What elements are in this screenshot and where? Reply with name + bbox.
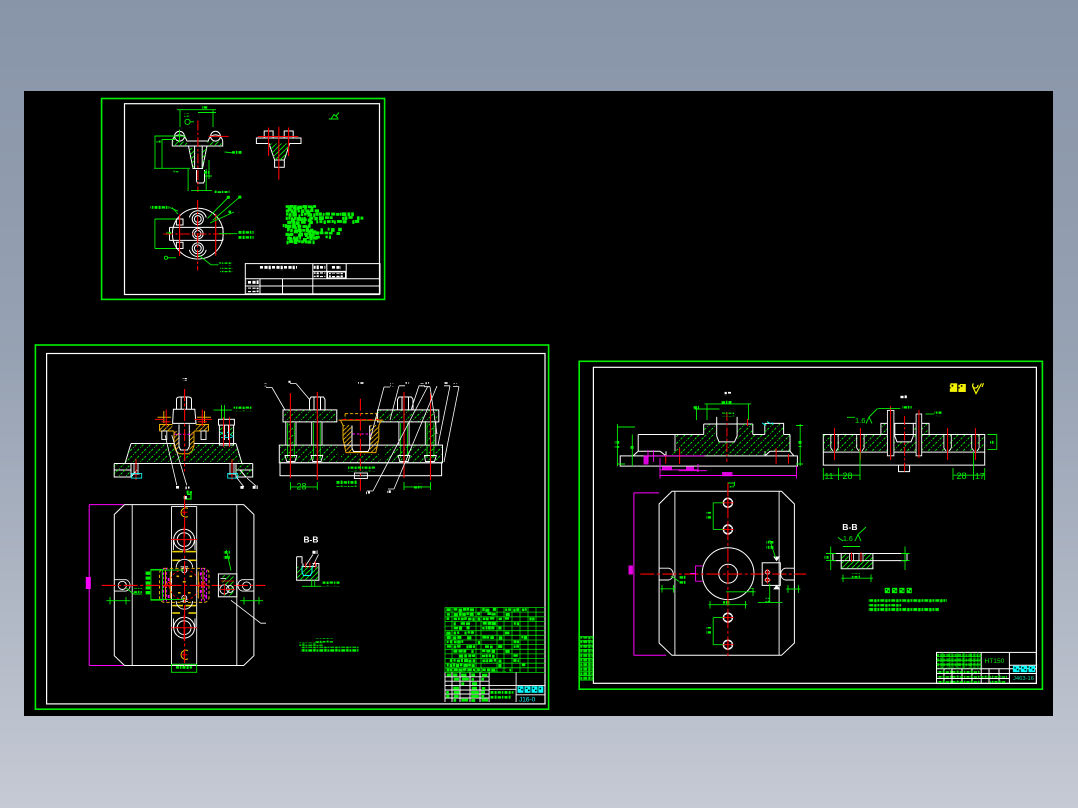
svg-text:1.6: 1.6 (855, 416, 865, 425)
svg-text:1.6: 1.6 (843, 536, 853, 543)
svg-text:17: 17 (975, 471, 985, 481)
svg-text:B-B: B-B (304, 535, 319, 545)
svg-text:11: 11 (825, 471, 834, 481)
svg-text:J463-16: J463-16 (1013, 676, 1034, 682)
svg-text:28: 28 (957, 471, 967, 481)
svg-text:B-B: B-B (842, 522, 857, 532)
svg-text:HT150: HT150 (985, 658, 1005, 665)
svg-text:J16-0: J16-0 (519, 697, 536, 704)
svg-text:28: 28 (843, 471, 853, 481)
